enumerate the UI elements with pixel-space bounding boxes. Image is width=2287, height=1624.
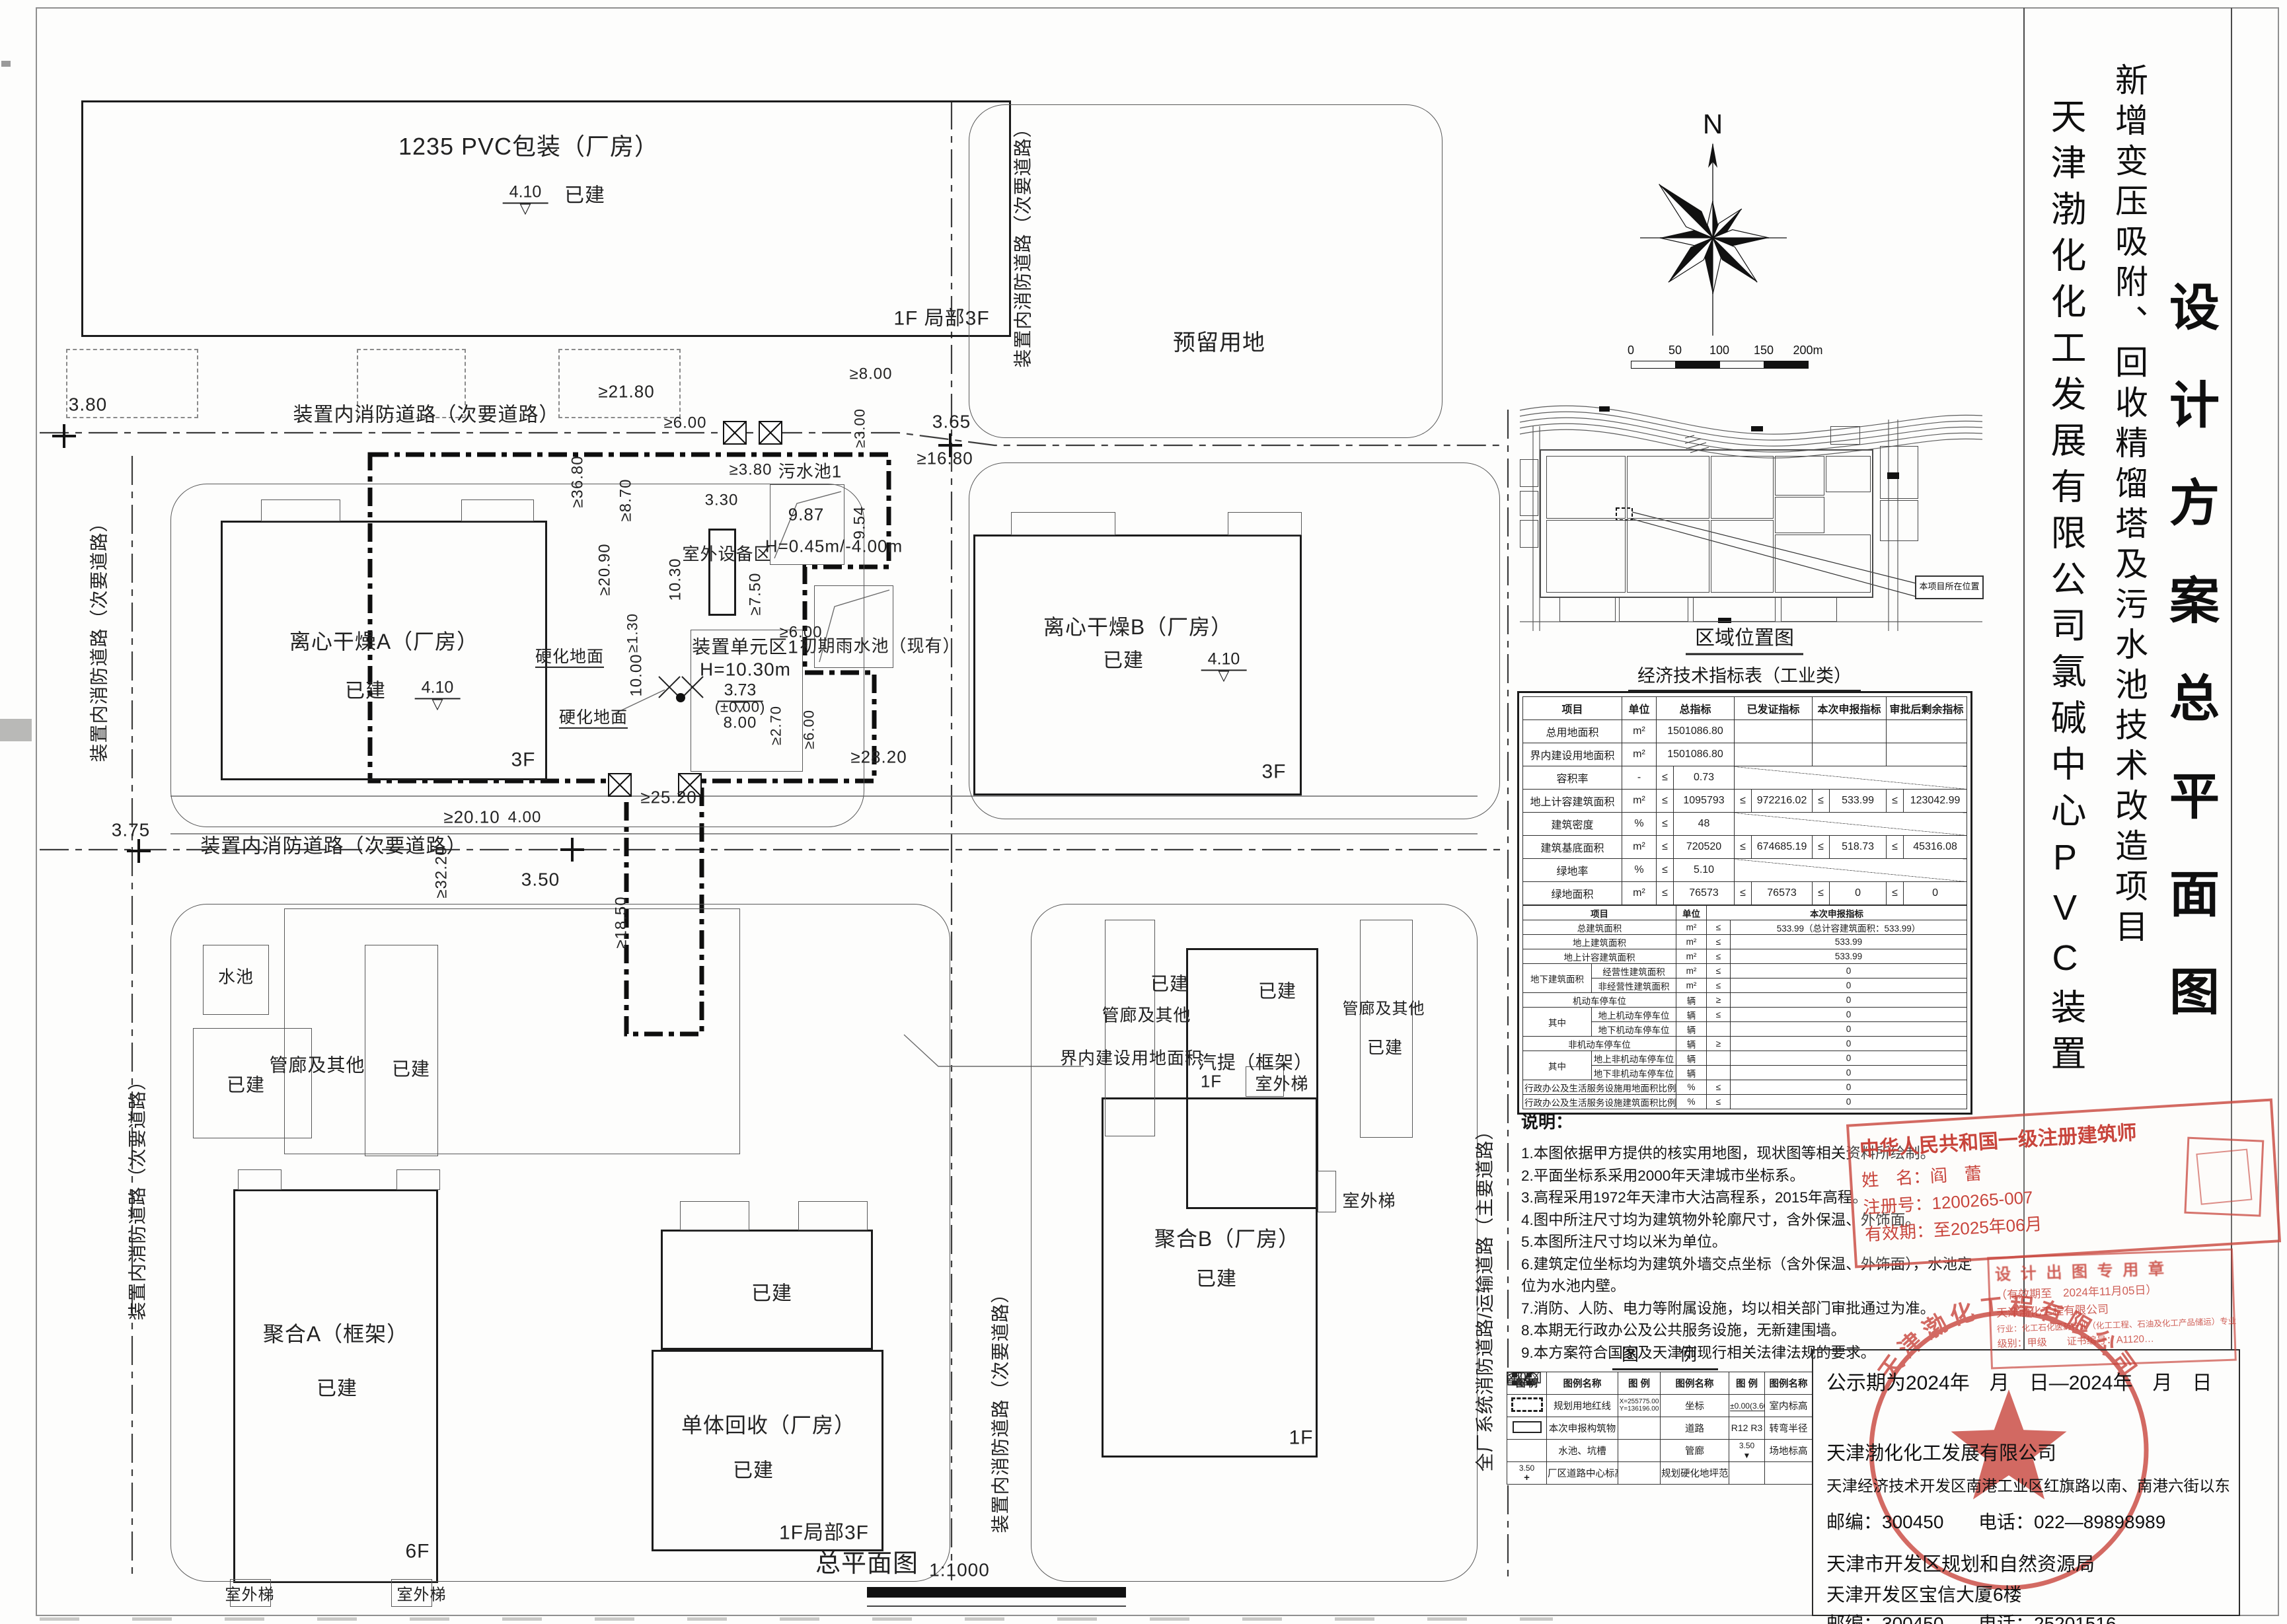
note-item: 7.消防、人防、电力等附属设施，均以相关部门审批通过为准。 (1521, 1298, 1984, 1320)
legend-symbol (1618, 1462, 1661, 1485)
dim-label: 4.00 (508, 809, 542, 825)
econ-cell: 总建筑面积 (1523, 920, 1676, 935)
building-label: 离心干燥A（厂房） (289, 631, 478, 653)
econ-cell: ≤ (1657, 813, 1674, 836)
econ-cell: 0 (1731, 1080, 1967, 1095)
econ-cell: - (1622, 766, 1657, 790)
legend-name: 转弯半径 (1765, 1417, 1813, 1440)
area-label: 装置单元区1 (692, 637, 799, 656)
econ-cell: 533.99 (1731, 949, 1967, 964)
pool-label: 水池 (218, 968, 254, 986)
econ-cell: ≤ (1735, 882, 1752, 905)
plan-title: 总平面图 (815, 1551, 919, 1578)
applicant-name: 天津渤化化工发展有限公司 (1826, 1438, 2056, 1465)
econ-cell: m² (1676, 949, 1707, 964)
legend-symbol (1507, 1395, 1547, 1417)
econ-cell: m² (1676, 964, 1707, 978)
econ-cell: m² (1622, 882, 1657, 905)
roof-notch (396, 1169, 440, 1190)
elevation-triangle-icon: ▽ (520, 203, 531, 213)
econ-cell: 0 (1830, 882, 1887, 905)
econ-cell: 其中 (1523, 1051, 1592, 1080)
road-label: 装置内消防道路（次要道路） (293, 404, 560, 425)
guanlang-b (1360, 920, 1413, 1138)
econ-cell: 绿地面积 (1523, 882, 1622, 905)
econ-cell: ≤ (1707, 949, 1731, 964)
econ-cell: 地上建筑面积 (1523, 935, 1676, 949)
land-label: 预留用地 (1173, 332, 1265, 355)
building-label: 聚合A（框架） (263, 1323, 408, 1346)
region-block (1520, 520, 1538, 548)
floor-label: 3F (511, 749, 535, 770)
econ-cell: % (1622, 859, 1657, 882)
econ-cell: ≥ (1707, 1037, 1731, 1051)
redline-icon (1511, 1397, 1543, 1412)
econ-cell: % (1622, 813, 1657, 836)
boundary-label: 界内建设用地面积 (1060, 1049, 1203, 1067)
scalebar-tick-label: 50 (1668, 344, 1682, 357)
econ-cell: % (1676, 1080, 1707, 1095)
building-label: 离心干燥B（厂房） (1043, 616, 1232, 639)
region-block (1781, 597, 1837, 622)
legend-header: 图例名称 (1765, 1372, 1813, 1395)
compass: N (1640, 108, 1787, 336)
building-label: 聚合B（厂房） (1154, 1228, 1300, 1251)
region-block (1775, 456, 1824, 496)
legend-name (1765, 1462, 1813, 1485)
legend-symbol: 3.50+ (1507, 1462, 1547, 1485)
applicant-phone: 电话：022—89898989 (1978, 1508, 2165, 1534)
status-label: 已建 (1367, 1039, 1403, 1056)
econ-cell (1735, 720, 1813, 743)
dim-label: ≥8.70 (617, 479, 634, 522)
legend-symbol: 3.50▼ (1729, 1440, 1765, 1462)
stair-label: 室外梯 (397, 1586, 447, 1603)
area-label: 室外设备区 (682, 545, 771, 563)
econ-cell (1735, 813, 1967, 836)
status-label: 已建 (1258, 981, 1296, 1000)
site-elevation-icon: 3.50▼ (1739, 1441, 1754, 1461)
architect-registration-stamp: 中华人民共和国一级注册建筑师 姓 名：阎 蕾 注册号：1200265-007 有… (1846, 1098, 2281, 1268)
econ-cell: 辆 (1676, 993, 1707, 1008)
status-label: 已建 (564, 185, 605, 206)
dim-label: ≥36.80 (569, 455, 585, 507)
dim-label: 9.87 (788, 505, 825, 523)
legend-symbol (1618, 1440, 1661, 1462)
econ-cell: 辆 (1676, 1037, 1707, 1051)
structure-icon (1513, 1421, 1542, 1433)
status-label: 已建 (733, 1460, 774, 1481)
region-location-map: 本项目所在位置 (1520, 387, 1982, 631)
scan-artifact (40, 1617, 1553, 1621)
dim-label: ≥20.10 (443, 808, 500, 826)
scalebar-tick-label: 0 (1628, 344, 1634, 357)
authority-postal: 邮编：300450 (1826, 1609, 1943, 1624)
dim-label: ≥20.90 (596, 543, 613, 595)
econ-cell: 76573 (1752, 882, 1813, 905)
econ-cell: 0 (1731, 1037, 1967, 1051)
scan-artifact (0, 719, 32, 741)
econ-cell (1707, 1066, 1731, 1080)
guanlang-a (1105, 920, 1155, 1136)
econ-table: 项目单位总指标已发证指标本次申报指标审批后剩余指标总用地面积m²1501086.… (1517, 691, 1972, 1115)
area-label: 管廊及其他 (1102, 1006, 1191, 1024)
legend-name: 规划用地红线 (1547, 1395, 1618, 1417)
econ-cell: 0 (1731, 964, 1967, 978)
elevation-triangle-icon: ▽ (432, 698, 443, 708)
econ-cell: ≤ (1657, 766, 1674, 790)
econ-cell (1707, 1022, 1731, 1037)
area-label: H=10.30m (700, 659, 791, 679)
econ-cell: % (1676, 1095, 1707, 1109)
stair-label: 室外梯 (225, 1586, 275, 1603)
road-label: 装置内消防道路（次要道路） (89, 513, 108, 762)
authority-name: 天津市开发区规划和自然资源局 (1826, 1549, 2095, 1576)
region-block (1546, 520, 1626, 593)
roof-notch (1011, 512, 1115, 535)
legend-name: 规划硬化地坪范围 (1661, 1462, 1729, 1485)
econ-cell (1887, 720, 1967, 743)
surface-label: 硬化地面 (535, 648, 604, 668)
legend-symbol: X=255775.00Y=136196.00 (1618, 1395, 1661, 1417)
elevation-triangle-icon: ▽ (735, 701, 746, 711)
status-label: 已建 (1196, 1269, 1237, 1290)
elevation-triangle-icon: ▽ (1218, 670, 1230, 680)
econ-cell: 地下机动车停车位 (1592, 1022, 1676, 1037)
titleblock-project: 新增变压吸附、回收精馏塔及污水池技术改造项目 (2105, 63, 2153, 949)
legend-name: 本次申报构筑物 (1547, 1417, 1618, 1440)
road-label: 装置内消防道路（次要道路） (1013, 118, 1032, 367)
elevation-mark: 4.10▽ (1201, 649, 1247, 680)
econ-cell: 单位 (1622, 697, 1657, 720)
plan-title-underline (867, 1606, 1126, 1607)
dim-label: ≥3.80 (730, 461, 772, 478)
econ-cell: ≤ (1887, 790, 1904, 813)
area-label: 管廊及其他 (269, 1055, 365, 1074)
econ-cell: m² (1622, 790, 1657, 813)
dim-label: ≥28.20 (850, 748, 907, 766)
plan-scale: 1:1000 (929, 1560, 990, 1579)
roof-notch (238, 1169, 281, 1190)
econ-cell (1735, 859, 1967, 882)
dim-label: 3.30 (705, 492, 739, 508)
legend-name: 水池、坑槽 (1547, 1440, 1618, 1462)
econ-cell: m² (1622, 743, 1657, 766)
econ-cell: 0 (1731, 1095, 1967, 1109)
turn-radius-icon: R12 R3 (1731, 1422, 1762, 1433)
econ-cell: 地上非机动车停车位 (1592, 1051, 1676, 1066)
econ-cell: ≤ (1707, 1008, 1731, 1022)
econ-cell: ≤ (1707, 920, 1731, 935)
surface-label: 硬化地面 (559, 709, 628, 729)
econ-cell: 单位 (1676, 906, 1707, 920)
econ-cell: 项目 (1523, 906, 1676, 920)
legend-name: 厂区道路中心标高 (1547, 1462, 1618, 1485)
econ-cell: ≤ (1735, 836, 1752, 859)
legend-grid: 图 例图例名称图 例图例名称图 例图例名称规划用地红线X=255775.00Y=… (1507, 1372, 1813, 1485)
elevation-cross-icon (560, 838, 584, 862)
roof-notch (1228, 512, 1302, 535)
region-block (1546, 456, 1626, 519)
econ-cell: 本次申报指标 (1707, 906, 1967, 920)
econ-cell: ≤ (1657, 790, 1674, 813)
elev-value: 3.50 (521, 869, 560, 889)
econ-cell: ≤ (1657, 859, 1674, 882)
econ-cell: 533.99 (1830, 790, 1887, 813)
area-label: 管廊及其他 (1343, 1000, 1425, 1017)
dim-label: ≥7.50 (747, 573, 763, 616)
legend-symbol (1618, 1417, 1661, 1440)
econ-cell: m² (1622, 836, 1657, 859)
econ-cell: ≤ (1813, 882, 1830, 905)
dim-label: ≥18.50 (613, 896, 629, 948)
roof-notch (798, 1201, 868, 1230)
dim-label: 9.54 (851, 506, 868, 540)
legend-name: 室内标高 (1765, 1395, 1813, 1417)
econ-cell: ≤ (1707, 978, 1731, 993)
floor-label: 3F (1261, 761, 1286, 782)
region-block (1711, 456, 1774, 519)
scalebar-segment (1631, 361, 1676, 369)
scalebar-tick-label: 200m (1793, 344, 1822, 357)
econ-cell: 建筑基底面积 (1523, 836, 1622, 859)
legend-header: 图例名称 (1661, 1372, 1729, 1395)
public-notice-box: 公示期为2024年 月 日—2024年 月 日 天津渤化化工发展有限公司 天津经… (1812, 1349, 2240, 1616)
elevation-cross-icon (938, 433, 962, 457)
floor-label: 1F (1201, 1072, 1222, 1090)
drawing-sheet: N 天津渤化工程有限公司 1235 PVC包装（厂房）已建1F 局部3F预留用地… (0, 0, 2287, 1624)
elev-value: 3.80 (69, 394, 108, 414)
building-label: 1235 PVC包装（厂房） (398, 134, 659, 159)
econ-cell: ≤ (1707, 1095, 1731, 1109)
region-block (1627, 520, 1709, 593)
econ-cell: 0 (1731, 993, 1967, 1008)
econ-cell (1887, 743, 1967, 766)
legend-title: 图 例 (1612, 1341, 1718, 1370)
region-block (1520, 459, 1538, 487)
elev-value: 3.75 (112, 820, 151, 839)
econ-cell: 经营性建筑面积 (1592, 964, 1676, 978)
econ-cell: 非经营性建筑面积 (1592, 978, 1676, 993)
scalebar-segment (1764, 361, 1809, 369)
econ-cell: 其中 (1523, 1008, 1592, 1037)
architect-seal-icon (2184, 1137, 2264, 1217)
pool-label: 初期雨水池（现有） (800, 637, 960, 655)
scalebar-tick-label: 150 (1754, 344, 1774, 357)
econ-cell: 45316.08 (1904, 836, 1967, 859)
road-label: 全厂系统消防道路/运输道路（主要道路） (1475, 1121, 1494, 1472)
econ-cell: 总指标 (1657, 697, 1735, 720)
econ-cell: 机动车停车位 (1523, 993, 1676, 1008)
dim-label: ≥8.00 (850, 365, 893, 382)
econ-cell: m² (1622, 720, 1657, 743)
econ-cell: ≤ (1707, 935, 1731, 949)
legend-header: 图例名称 (1547, 1372, 1618, 1395)
econ-cell: 1095793 (1674, 790, 1735, 813)
econ-cell: m² (1676, 935, 1707, 949)
scale-bar: 050100150200m (1631, 344, 1813, 374)
region-map-title: 区域位置图 (1686, 622, 1803, 655)
floor-elevation-icon: ±0.00(3.60) (1730, 1401, 1765, 1411)
floor-label: 1F 局部3F (893, 308, 989, 329)
stair-box (1318, 1171, 1336, 1212)
floor-label: 6F (405, 1541, 430, 1562)
econ-cell: ≤ (1735, 790, 1752, 813)
region-block (1520, 491, 1538, 516)
dim-label: 8.00 (724, 714, 757, 731)
econ-cell: 518.73 (1830, 836, 1887, 859)
region-block (1830, 426, 1860, 445)
econ-cell: m² (1676, 920, 1707, 935)
econ-cell: 0 (1731, 1022, 1967, 1037)
econ-cell (1813, 720, 1887, 743)
scalebar-segment (1719, 361, 1764, 369)
legend-header: 图 例 (1729, 1372, 1765, 1395)
econ-cell: 76573 (1674, 882, 1735, 905)
region-block (1880, 446, 1918, 499)
dim-label: ≥3.00 (852, 408, 867, 448)
econ-cell: 0 (1904, 882, 1967, 905)
econ-cell: 5.10 (1674, 859, 1735, 882)
econ-cell: ≤ (1813, 790, 1830, 813)
pool-depth-label: H=0.45m/-4.00m (765, 537, 903, 555)
econ-cell: 0 (1731, 1066, 1967, 1080)
econ-cell: 0 (1731, 1008, 1967, 1022)
econ-cell: 48 (1674, 813, 1735, 836)
roof-notch (261, 499, 340, 521)
north-label: N (1703, 108, 1723, 139)
econ-cell: 674685.19 (1752, 836, 1813, 859)
titleblock-drawing: 设计方案总平面图 (2153, 281, 2226, 1063)
region-block (1775, 497, 1824, 533)
legend-symbol (1507, 1417, 1547, 1440)
region-block (1693, 597, 1776, 622)
econ-cell: 辆 (1676, 1008, 1707, 1022)
econ-cell: 总用地面积 (1523, 720, 1622, 743)
elevation-mark: 3.73▽ (718, 681, 763, 711)
econ-cell: 本次申报指标 (1813, 697, 1887, 720)
roof-notch (461, 499, 534, 521)
elevation-cross-icon (127, 839, 151, 863)
econ-cell: 0 (1731, 978, 1967, 993)
coordinate-icon: X=255775.00Y=136196.00 (1620, 1398, 1659, 1413)
dim-label: ≥21.80 (598, 383, 654, 400)
titleblock-company: 天津渤化化工发展有限公司氯碱中心PVC装置 (2039, 98, 2091, 1081)
econ-cell: 非机动车停车位 (1523, 1037, 1676, 1051)
status-label: 已建 (227, 1075, 265, 1094)
econ-cell: ≤ (1657, 836, 1674, 859)
econ-cell: m² (1676, 978, 1707, 993)
elevation-mark: 4.10▽ (503, 182, 548, 213)
building-label: 单体回收（厂房） (681, 1415, 856, 1437)
econ-cell: 界内建设用地面积 (1523, 743, 1622, 766)
econ-cell: 0.73 (1674, 766, 1735, 790)
status-label: 已建 (1150, 974, 1189, 993)
dim-label: ≥25.20 (640, 788, 696, 806)
econ-cell: 地下非机动车停车位 (1592, 1066, 1676, 1080)
econ-cell: 地上机动车停车位 (1592, 1008, 1676, 1022)
econ-cell: ≤ (1707, 964, 1731, 978)
legend-symbol: ±0.00(3.60)▽ (1729, 1395, 1765, 1417)
econ-cell: 1501086.80 (1657, 743, 1735, 766)
econ-cell (1813, 743, 1887, 766)
north-arrow-icon (1708, 143, 1717, 168)
legend-name: 管廊 (1661, 1440, 1729, 1462)
econ-cell: 项目 (1523, 697, 1622, 720)
econ-cell (1735, 743, 1813, 766)
road-label: 装置内消防道路（次要道路） (128, 1071, 147, 1320)
notice-period: 公示期为2024年 月 日—2024年 月 日 (1826, 1366, 2212, 1395)
scalebar-tick-label: 100 (1709, 344, 1729, 357)
econ-table-title: 经济技术指标表（工业类） (1628, 661, 1861, 692)
econ-cell: 123042.99 (1904, 790, 1967, 813)
econ-cell: ≤ (1887, 836, 1904, 859)
region-block (1627, 456, 1709, 519)
region-block (1559, 597, 1616, 622)
econ-cell: 720520 (1674, 836, 1735, 859)
plan-title-bar (867, 1587, 1126, 1598)
econ-cell (1735, 766, 1967, 790)
region-block (1880, 500, 1918, 541)
econ-cell: 0 (1731, 1051, 1967, 1066)
econ-cell: 辆 (1676, 1022, 1707, 1037)
econ-cell: ≤ (1887, 882, 1904, 905)
floor-label: 1F局部3F (779, 1522, 869, 1543)
tall-box (365, 945, 438, 1156)
dim-label: ≥6.00 (664, 414, 707, 431)
applicant-address: 天津经济技术开发区南港工业区红旗路以南、南港六街以东 (1826, 1473, 2230, 1496)
dim-label: ≥1.30 (624, 613, 640, 653)
econ-cell: 972216.02 (1752, 790, 1813, 813)
legend-symbol (1507, 1440, 1547, 1462)
building-label: 汽提（框架） (1198, 1052, 1313, 1072)
road-center-elevation-icon: 3.50+ (1519, 1463, 1534, 1483)
econ-cell: 行政办公及生活服务设施建筑面积比例 (1523, 1095, 1676, 1109)
econ-table-lower: 项目单位本次申报指标总建筑面积m²≤533.99（总计容建筑面积：533.99）… (1522, 905, 1967, 1109)
legend-header: 图 例 (1507, 1372, 1547, 1395)
scan-artifact (1, 61, 11, 67)
econ-cell: 地上计容建筑面积 (1523, 790, 1622, 813)
econ-cell: 1501086.80 (1657, 720, 1735, 743)
legend-table: 图 例图例名称图 例图例名称图 例图例名称规划用地红线X=255775.00Y=… (1507, 1372, 1813, 1485)
status-label: 已建 (751, 1283, 792, 1304)
legend-name: 坐标 (1661, 1395, 1729, 1417)
status-label: 已建 (1103, 650, 1144, 671)
dim-label: ≥6.00 (801, 710, 816, 749)
region-block (1775, 535, 1871, 593)
dim-label: ≥2.70 (768, 706, 783, 745)
authority-address: 天津开发区宝信大厦6楼 (1826, 1580, 2022, 1607)
econ-cell (1707, 1051, 1731, 1066)
econ-cell: ≤ (1707, 1080, 1731, 1095)
pool-label: 污水池1 (778, 462, 842, 480)
elevation-cross-icon (52, 424, 76, 448)
econ-cell: ≤ (1813, 836, 1830, 859)
econ-cell: 辆 (1676, 1066, 1707, 1080)
legend-symbol: R12 R3 (1729, 1417, 1765, 1440)
status-label: 已建 (392, 1059, 430, 1078)
region-block (1826, 456, 1871, 492)
region-block (1711, 520, 1774, 593)
dim-label: 10.30 (667, 558, 683, 601)
econ-cell: ≥ (1707, 993, 1731, 1008)
econ-cell: 辆 (1676, 1051, 1707, 1066)
econ-cell: 533.99 (1731, 935, 1967, 949)
econ-cell: 绿地率 (1523, 859, 1622, 882)
note-item: 8.本期无行政办公及公共服务设施，无新建围墙。 (1521, 1319, 1984, 1342)
guanlang-zone (284, 908, 740, 1154)
road-label: 装置内消防道路（次要道路） (991, 1284, 1010, 1533)
